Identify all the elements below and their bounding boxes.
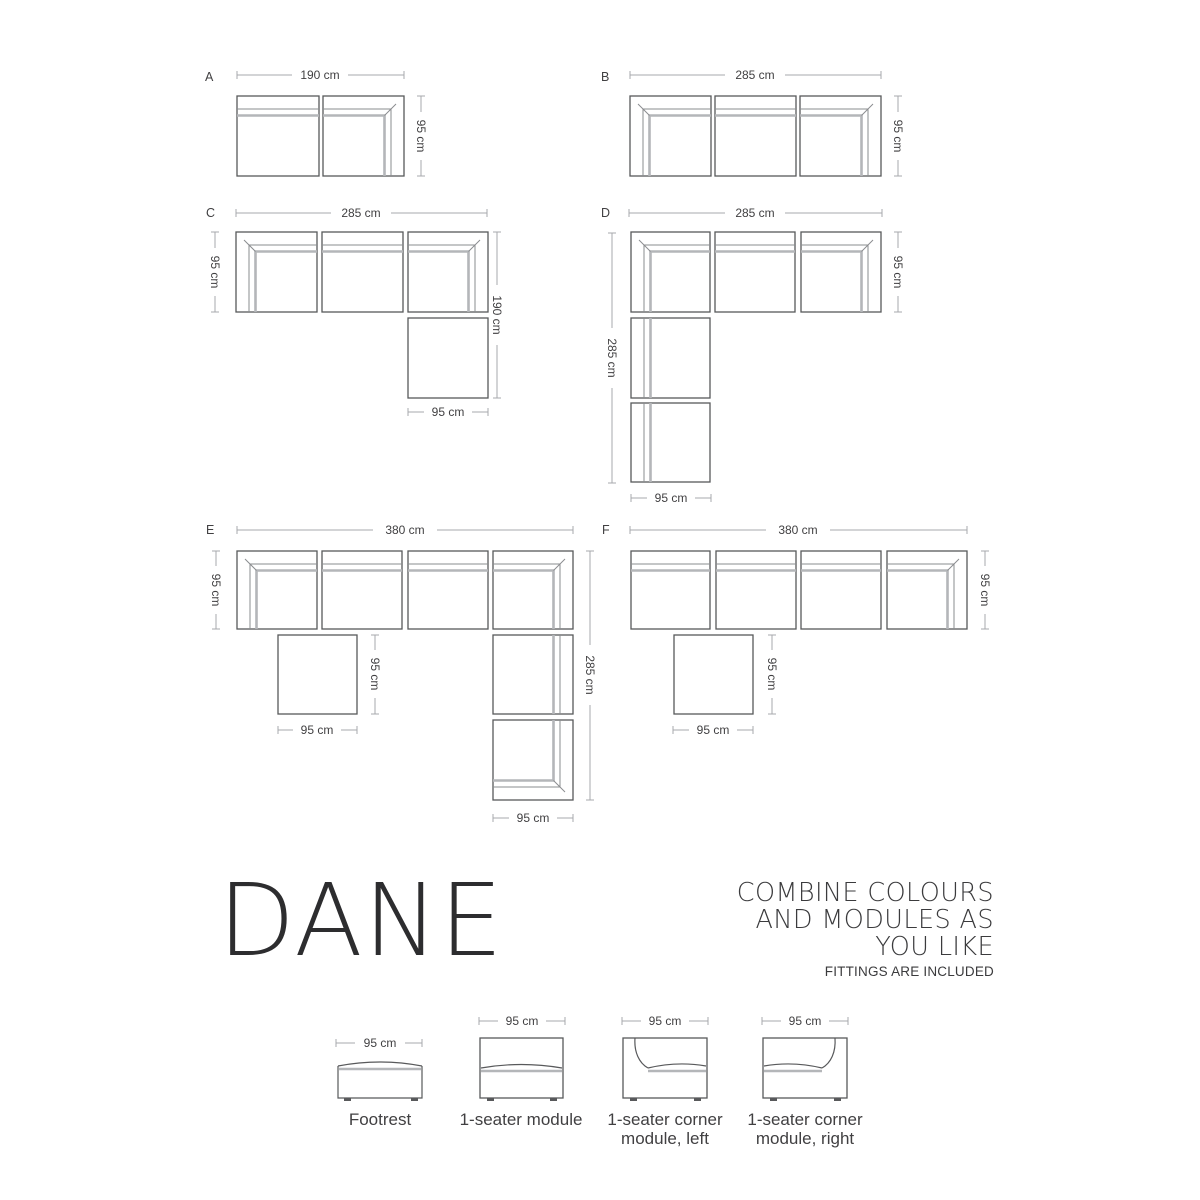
fittings-note: FITTINGS ARE INCLUDED xyxy=(825,964,994,979)
config-c-right-dimension: 190 cm xyxy=(490,232,504,398)
seat-module-plan xyxy=(801,551,881,629)
dimension-text: 95 cm xyxy=(891,256,905,289)
config-c-bottom-dimension: 95 cm xyxy=(408,405,488,419)
config-a: A 190 cm 95 cm xyxy=(205,68,428,176)
dimension-text: 285 cm xyxy=(341,206,380,220)
corner-module-right-plan xyxy=(801,232,881,312)
legend-label: Footrest xyxy=(349,1110,412,1129)
corner-module-right-plan xyxy=(887,551,967,629)
config-e-right-dimension: 285 cm xyxy=(583,551,597,800)
config-f-footrest-bottom-dimension: 95 cm xyxy=(673,723,753,737)
dimension-text: 95 cm xyxy=(655,491,688,505)
config-f-top-dimension: 380 cm xyxy=(630,523,967,537)
config-d-right-dimension: 95 cm xyxy=(891,232,905,312)
tagline-line-2: AND MODULES AS xyxy=(756,905,994,935)
seat-module-plan xyxy=(237,96,319,176)
seat-module-plan xyxy=(322,551,402,629)
corner-module-right-plan xyxy=(323,96,404,176)
seat-module-plan-vertical xyxy=(631,318,710,398)
config-f-letter: F xyxy=(602,523,610,537)
dimension-text: 95 cm xyxy=(364,1036,397,1050)
corner-module-left-plan xyxy=(236,232,317,312)
dimension-text: 95 cm xyxy=(697,723,730,737)
config-d: D 285 cm 95 cm 285 cm 95 cm xyxy=(601,206,905,505)
corner-module-left-plan xyxy=(237,551,317,629)
seat-module-plan xyxy=(715,232,795,312)
config-a-top-dimension: 190 cm xyxy=(237,68,404,82)
config-f-footrest-right-dimension: 95 cm xyxy=(765,635,779,714)
config-b-right-dimension: 95 cm xyxy=(891,96,905,176)
config-e-footrest-bottom-dimension: 95 cm xyxy=(278,723,357,737)
corner-module-right-plan xyxy=(493,551,573,629)
config-e: E 380 cm 95 cm 285 cm 95 cm 95 cm xyxy=(206,523,597,825)
corner-module-right-plan xyxy=(408,232,488,312)
seat-module-plan xyxy=(408,551,488,629)
legend-footrest: 95 cm Footrest xyxy=(336,1036,422,1129)
config-e-footrest-right-dimension: 95 cm xyxy=(368,635,382,714)
config-f: F 380 cm 95 cm 95 cm 95 cm xyxy=(602,523,992,737)
dimension-text: 95 cm xyxy=(891,120,905,153)
dimension-text: 95 cm xyxy=(978,574,992,607)
dimension-text: 95 cm xyxy=(432,405,465,419)
dimension-text: 285 cm xyxy=(583,655,597,694)
config-a-letter: A xyxy=(205,70,214,84)
config-e-left-dimension: 95 cm xyxy=(209,551,223,629)
dimension-text: 380 cm xyxy=(778,523,817,537)
seat-module-plan-vertical xyxy=(631,403,710,482)
tagline-line-1: COMBINE COLOURS xyxy=(737,878,994,908)
legend-label-line-1: 1-seater corner xyxy=(747,1110,863,1129)
config-e-letter: E xyxy=(206,523,214,537)
legend-corner-module-left: 95 cm 1-seater corner module, left xyxy=(607,1014,723,1148)
config-e-top-dimension: 380 cm xyxy=(237,523,573,537)
legend: 95 cm Footrest 95 cm 1-seater module 95 … xyxy=(336,1014,863,1148)
footrest-plan xyxy=(278,635,357,714)
dimension-text: 95 cm xyxy=(789,1014,822,1028)
dimension-text: 285 cm xyxy=(605,338,619,377)
config-d-bottom-dimension: 95 cm xyxy=(631,491,711,505)
dimension-text: 95 cm xyxy=(301,723,334,737)
legend-label-line-1: 1-seater corner xyxy=(607,1110,723,1129)
footrest-plan xyxy=(674,635,753,714)
config-c-left-dimension: 95 cm xyxy=(208,232,222,312)
dimension-text: 95 cm xyxy=(209,574,223,607)
product-title: DANE xyxy=(218,862,504,979)
config-b: B 285 cm 95 cm xyxy=(601,68,905,176)
config-b-letter: B xyxy=(601,70,609,84)
legend-label-line-2: module, left xyxy=(621,1129,709,1148)
config-c-letter: C xyxy=(206,206,215,220)
dimension-text: 95 cm xyxy=(649,1014,682,1028)
dimension-text: 380 cm xyxy=(385,523,424,537)
corner-module-right-plan xyxy=(800,96,881,176)
dimension-text: 95 cm xyxy=(517,811,550,825)
corner-module-left-plan xyxy=(631,232,710,312)
branding: DANE COMBINE COLOURS AND MODULES AS YOU … xyxy=(218,862,994,979)
dimension-text: 95 cm xyxy=(506,1014,539,1028)
footrest-plan xyxy=(408,318,488,398)
dimension-text: 95 cm xyxy=(368,658,382,691)
dimension-text: 95 cm xyxy=(765,658,779,691)
corner-module-bottom-right-plan xyxy=(493,720,573,800)
config-b-top-dimension: 285 cm xyxy=(630,68,881,82)
dimension-text: 285 cm xyxy=(735,68,774,82)
dimension-text: 95 cm xyxy=(208,256,222,289)
config-e-bottom-dimension: 95 cm xyxy=(493,811,573,825)
config-d-top-dimension: 285 cm xyxy=(629,206,882,220)
config-f-right-dimension: 95 cm xyxy=(978,551,992,629)
config-a-right-dimension: 95 cm xyxy=(414,96,428,176)
legend-seat-module: 95 cm 1-seater module xyxy=(460,1014,583,1129)
legend-label-line-2: module, right xyxy=(756,1129,855,1148)
dimension-text: 95 cm xyxy=(414,120,428,153)
tagline-line-3: YOU LIKE xyxy=(875,932,994,962)
config-d-letter: D xyxy=(601,206,610,220)
config-d-left-dimension: 285 cm xyxy=(605,233,619,483)
corner-module-left-plan xyxy=(630,96,711,176)
seat-module-plan xyxy=(322,232,403,312)
dimension-text: 285 cm xyxy=(735,206,774,220)
seat-module-plan xyxy=(715,96,796,176)
seat-module-plan xyxy=(631,551,710,629)
legend-label: 1-seater module xyxy=(460,1110,583,1129)
config-c: C 285 cm 95 cm 190 cm 95 cm xyxy=(206,206,504,419)
seat-module-plan-vertical xyxy=(493,635,573,714)
seat-module-plan xyxy=(716,551,796,629)
diagram-canvas: A 190 cm 95 cm B 285 cm xyxy=(0,0,1200,1200)
dimension-text: 190 cm xyxy=(490,295,504,334)
dimension-text: 190 cm xyxy=(300,68,339,82)
legend-corner-module-right: 95 cm 1-seater corner module, right xyxy=(747,1014,863,1148)
config-c-top-dimension: 285 cm xyxy=(236,206,487,220)
spec-sheet: A 190 cm 95 cm B 285 cm xyxy=(0,0,1200,1200)
